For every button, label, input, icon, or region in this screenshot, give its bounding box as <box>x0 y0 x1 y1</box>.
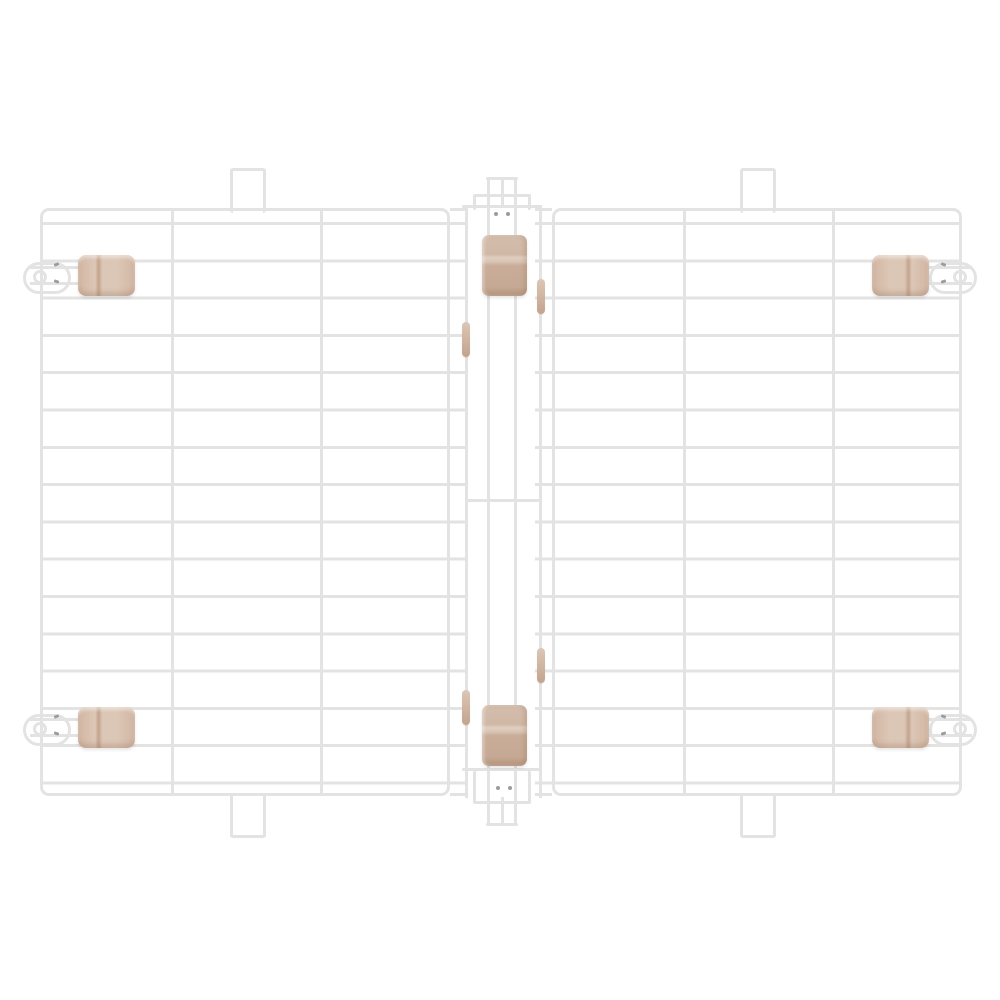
hinge-clip-bottom <box>482 705 527 766</box>
hinge-top-outer-bar <box>462 205 542 208</box>
left-panel-top-tab <box>230 168 266 213</box>
right-panel-bottom-tab <box>740 793 776 838</box>
rail-sleeve-top-left <box>462 322 470 357</box>
corner-latch-top-left <box>20 254 140 300</box>
hinge-clip-top <box>482 235 527 296</box>
right-panel-top-tab <box>740 168 776 213</box>
corner-clip <box>872 707 929 748</box>
corner-latch-top-right <box>860 254 980 300</box>
rail-sleeve-bottom-right <box>537 648 545 683</box>
pin-tip-dot <box>508 786 512 790</box>
pin-tip-dot <box>496 786 500 790</box>
corner-clip <box>78 707 135 748</box>
rail-sleeve-bottom-left <box>462 690 470 725</box>
product-photo <box>0 0 1000 1000</box>
pin-tip-dot <box>494 212 498 216</box>
vertical-wire <box>832 211 835 793</box>
corner-clip <box>872 255 929 296</box>
corner-clip <box>78 255 135 296</box>
hinge-top-inner-bar <box>486 177 518 180</box>
vertical-wire <box>171 211 174 793</box>
corner-latch-bottom-right <box>860 706 980 752</box>
left-panel-bottom-tab <box>230 793 266 838</box>
pin-tip-dot <box>506 212 510 216</box>
hinge-crossbar <box>465 499 542 502</box>
corner-latch-bottom-left <box>20 706 140 752</box>
vertical-wire <box>320 211 323 793</box>
hinge-bottom-inner-bar <box>486 823 518 826</box>
rail-sleeve-top-right <box>537 279 545 314</box>
hinge-bottom-mid-tier <box>473 771 531 804</box>
vertical-wire <box>683 211 686 793</box>
